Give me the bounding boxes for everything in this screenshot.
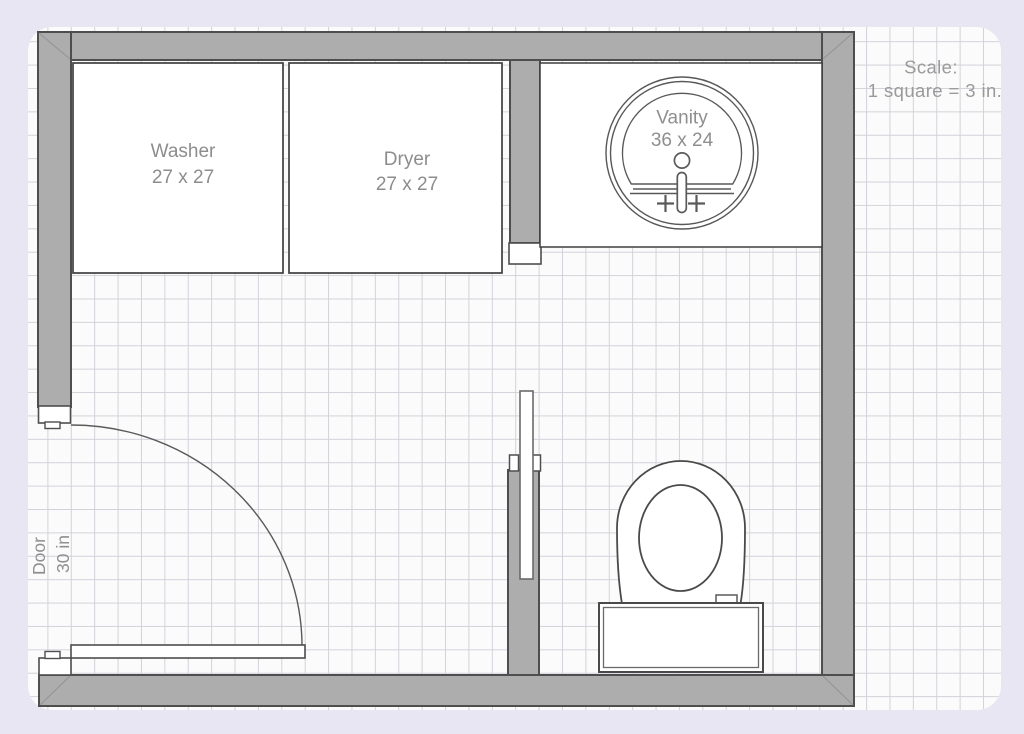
svg-text:36 x 24: 36 x 24: [651, 130, 714, 151]
svg-text:Vanity: Vanity: [656, 108, 708, 129]
svg-text:Washer: Washer: [151, 141, 216, 162]
svg-text:Door: Door: [29, 537, 49, 575]
svg-text:Dryer: Dryer: [384, 149, 431, 170]
svg-text:30 in: 30 in: [53, 535, 73, 573]
svg-text:1 square = 3 in.: 1 square = 3 in.: [868, 80, 1002, 101]
svg-text:27 x 27: 27 x 27: [152, 167, 214, 188]
svg-text:Scale:: Scale:: [904, 57, 958, 78]
svg-text:27 x 27: 27 x 27: [376, 174, 438, 195]
